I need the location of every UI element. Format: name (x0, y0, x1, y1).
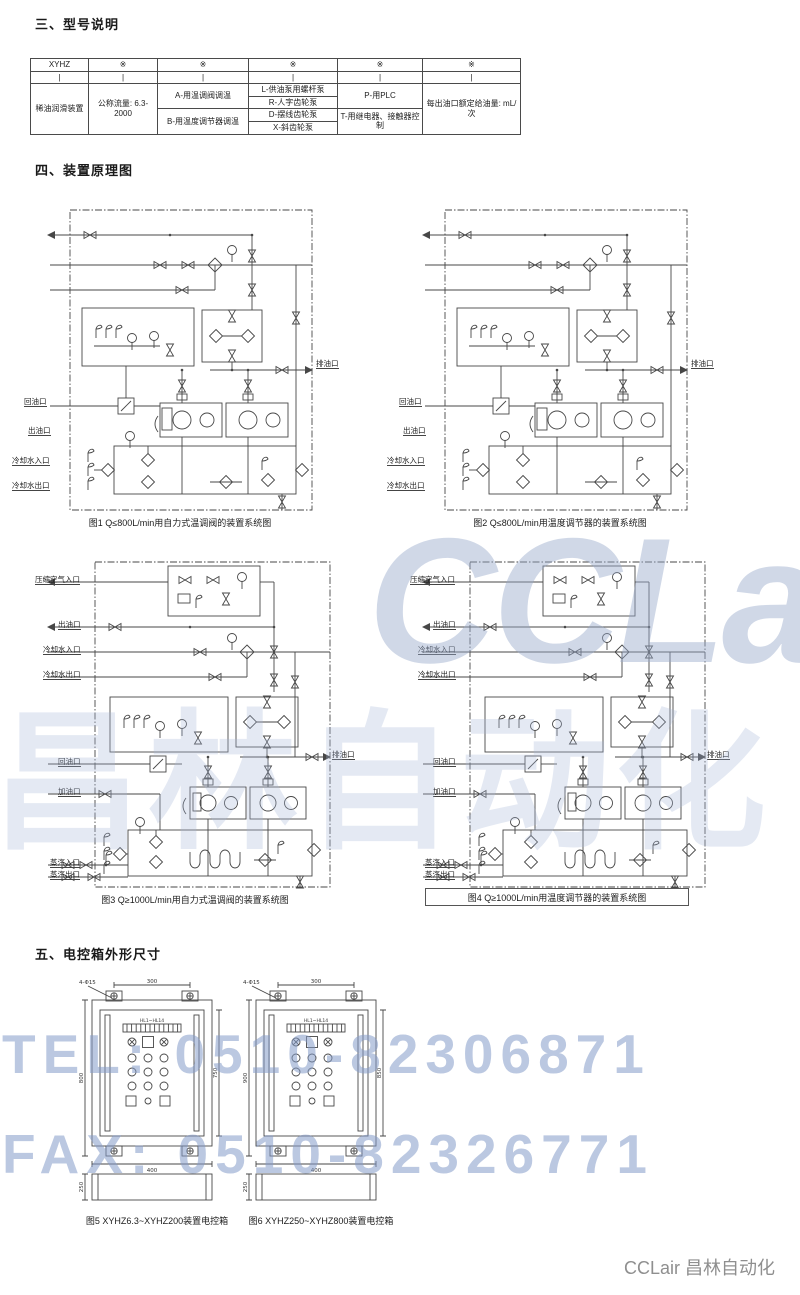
model-code-table: XYHZ ※ ※ ※ ※ ※ | | | | | | 稀油润滑装置 公称流量: … (30, 58, 521, 135)
port-compressed-air-inlet-label: 压缩空气入口 (410, 576, 455, 585)
port-steam-inlet-label: 蒸汽入口 (425, 859, 455, 868)
schematic-fig2: 出油口 冷却水入口 冷却水出口 回油口 排油口 (385, 198, 720, 513)
port-cooling-water-inlet-label: 冷却水入口 (43, 646, 81, 655)
fig4-caption: 图4 Q≥1000L/min用温度调节器的装置系统图 (425, 888, 689, 906)
left-height-dimension: 800 (79, 1072, 85, 1083)
port-oil-outlet-label: 出油口 (58, 621, 81, 630)
fig6-caption: 图6 XYHZ250~XYHZ800装置电控箱 (231, 1214, 411, 1227)
schematic-fig3: 压缩空气入口 出油口 冷却水入口 冷却水出口 回油口 加油口 蒸汽入口 蒸汽出口… (10, 552, 350, 892)
catalog-page: 三、型号说明 XYHZ ※ ※ ※ ※ ※ | | | | | | 稀油润滑装置… (0, 0, 800, 1295)
port-oil-return-label: 回油口 (58, 758, 81, 767)
right-height-dimension: 850 (377, 1067, 383, 1078)
table-row: 稀油润滑装置 公称流量: 6.3-2000 A-用温调阀调温 L-供油泵用螺杆泵… (31, 84, 521, 97)
pump-option-cell: L-供油泵用螺杆泵 (249, 84, 338, 97)
bottom-width-dimension: 400 (147, 1168, 158, 1174)
pipe-cell: | (89, 71, 158, 84)
port-oil-drain-label: 排油口 (691, 360, 714, 369)
temp-option-a-cell: A-用温调阀调温 (158, 84, 249, 109)
port-oil-drain-label: 排油口 (316, 360, 339, 369)
placeholder-cell: ※ (249, 59, 338, 72)
port-oil-return-label: 回油口 (433, 758, 456, 767)
table-row: XYHZ ※ ※ ※ ※ ※ (31, 59, 521, 72)
schematic-fig4: 压缩空气入口 出油口 冷却水入口 冷却水出口 回油口 加油口 蒸汽入口 蒸汽出口… (385, 552, 725, 892)
cabinet-fig5-drawing: 4-Φ15 300 400 800 750 250 HL1~HL14 (78, 978, 238, 1210)
port-cooling-water-outlet-label: 冷却水出口 (387, 482, 425, 491)
pump-option-cell: R-人字齿轮泵 (249, 96, 338, 109)
port-cooling-water-outlet-label: 冷却水出口 (12, 482, 50, 491)
side-depth-dimension: 250 (243, 1181, 249, 1192)
control-option-p-cell: P-用PLC (338, 84, 423, 109)
port-compressed-air-inlet-label: 压缩空气入口 (35, 576, 80, 585)
oil-rate-cell: 每出油口额定给油量: mL/次 (423, 84, 521, 134)
flow-cell: 公称流量: 6.3-2000 (89, 84, 158, 134)
fig1-caption: 图1 Q≤800L/min用自力式温调阀的装置系统图 (30, 516, 330, 529)
pipe-cell: | (249, 71, 338, 84)
placeholder-cell: ※ (158, 59, 249, 72)
control-option-t-cell: T-用继电器、接触器控制 (338, 109, 423, 134)
port-oil-fill-label: 加油口 (433, 788, 456, 797)
port-cooling-water-inlet-label: 冷却水入口 (418, 646, 456, 655)
right-height-dimension: 750 (213, 1067, 219, 1078)
port-steam-outlet-label: 蒸汽出口 (50, 871, 80, 880)
fig2-caption: 图2 Q≤800L/min用温度调节器的装置系统图 (410, 516, 710, 529)
side-depth-dimension: 250 (79, 1181, 85, 1192)
placeholder-cell: ※ (338, 59, 423, 72)
indicator-strip-label: HL1~HL14 (304, 1018, 328, 1024)
schematic-drawing (385, 198, 720, 513)
pipe-cell: | (31, 71, 89, 84)
holes-dimension-label: 4-Φ15 (243, 980, 260, 986)
port-steam-outlet-label: 蒸汽出口 (425, 871, 455, 880)
table-row: | | | | | | (31, 71, 521, 84)
port-oil-return-label: 回油口 (399, 398, 422, 407)
model-code-cell: XYHZ (31, 59, 89, 72)
device-name-cell: 稀油润滑装置 (31, 84, 89, 134)
cabinet-fig6-drawing: 4-Φ15 300 400 900 850 250 HL1~HL14 (242, 978, 402, 1210)
fig5-caption: 图5 XYHZ6.3~XYHZ200装置电控箱 (67, 1214, 247, 1227)
pipe-cell: | (423, 71, 521, 84)
pump-option-cell: X-斜齿轮泵 (249, 121, 338, 134)
left-height-dimension: 900 (243, 1072, 249, 1083)
section-cabinet-title: 五、电控箱外形尺寸 (35, 944, 161, 963)
port-oil-outlet-label: 出油口 (28, 427, 51, 436)
port-oil-outlet-label: 出油口 (403, 427, 426, 436)
indicator-strip-label: HL1~HL14 (140, 1018, 164, 1024)
placeholder-cell: ※ (89, 59, 158, 72)
pipe-cell: | (158, 71, 249, 84)
footer-brand: CCLair 昌林自动化 (624, 1254, 775, 1280)
port-cooling-water-outlet-label: 冷却水出口 (418, 671, 456, 680)
port-oil-drain-label: 排油口 (707, 751, 730, 760)
holes-dimension-label: 4-Φ15 (79, 980, 96, 986)
port-cooling-water-inlet-label: 冷却水入口 (12, 457, 50, 466)
port-oil-drain-label: 排油口 (332, 751, 355, 760)
schematic-drawing (10, 198, 345, 513)
port-cooling-water-outlet-label: 冷却水出口 (43, 671, 81, 680)
port-oil-outlet-label: 出油口 (433, 621, 456, 630)
section-model-title: 三、型号说明 (35, 14, 119, 33)
port-cooling-water-inlet-label: 冷却水入口 (387, 457, 425, 466)
pump-option-cell: D-摆线齿轮泵 (249, 109, 338, 122)
bottom-width-dimension: 400 (311, 1168, 322, 1174)
port-oil-fill-label: 加油口 (58, 788, 81, 797)
temp-option-b-cell: B-用温度调节器调温 (158, 109, 249, 134)
schematic-fig1: 出油口 冷却水入口 冷却水出口 回油口 排油口 (10, 198, 345, 513)
top-width-dimension: 300 (311, 979, 322, 985)
top-width-dimension: 300 (147, 979, 158, 985)
port-steam-inlet-label: 蒸汽入口 (50, 859, 80, 868)
pipe-cell: | (338, 71, 423, 84)
fig3-caption: 图3 Q≥1000L/min用自力式温调阀的装置系统图 (45, 893, 345, 906)
schematic-drawing (10, 552, 350, 892)
placeholder-cell: ※ (423, 59, 521, 72)
section-schematic-title: 四、装置原理图 (35, 160, 133, 179)
port-oil-return-label: 回油口 (24, 398, 47, 407)
schematic-drawing (385, 552, 725, 892)
